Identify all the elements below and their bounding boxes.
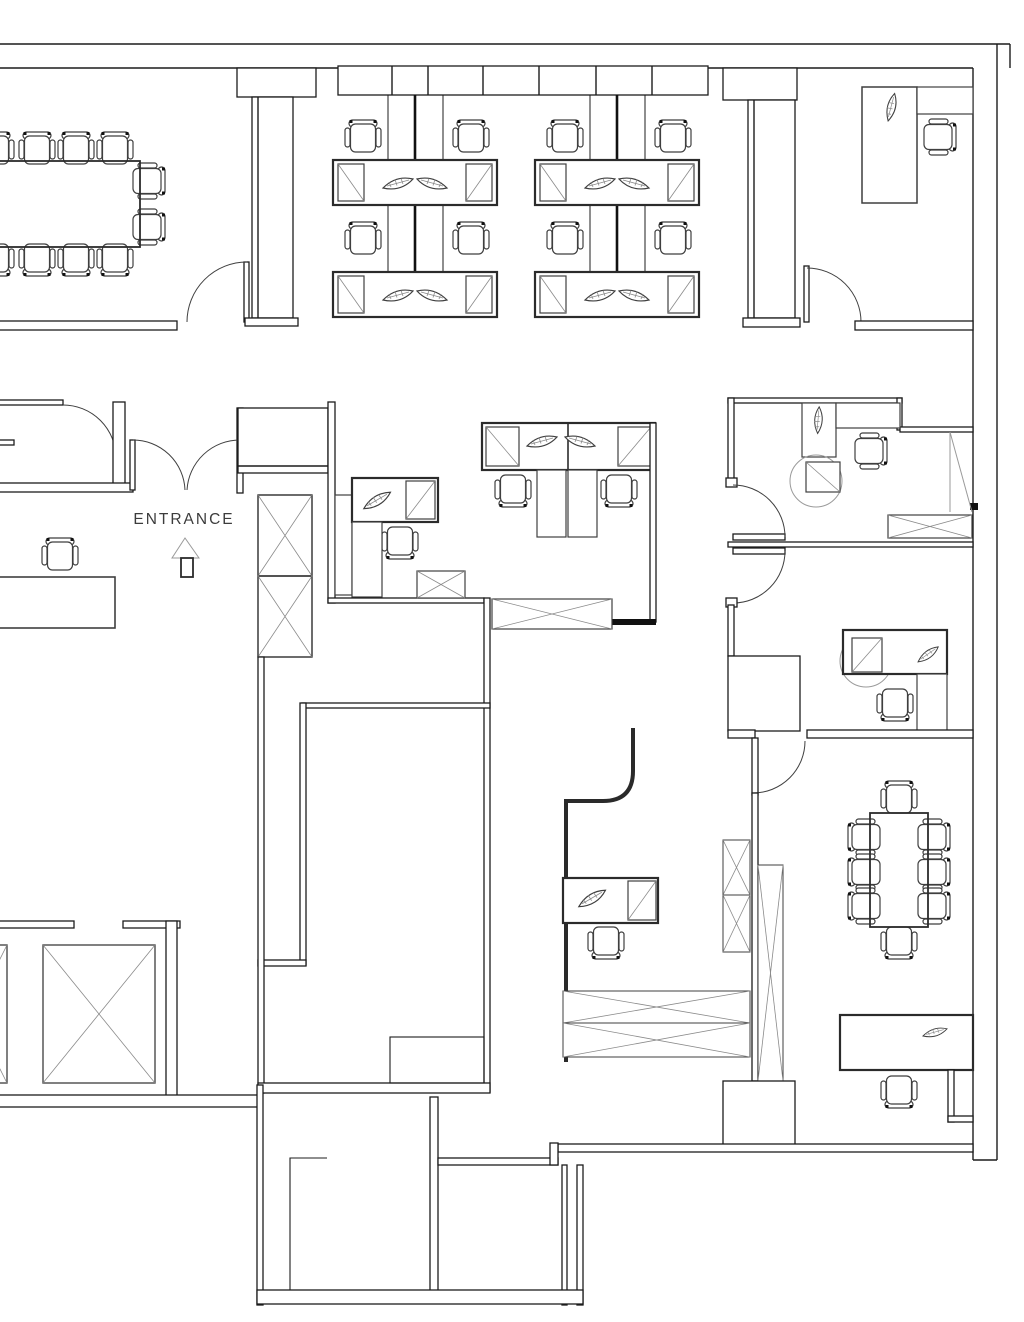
wall [900, 427, 973, 432]
crossed-cabinet [417, 571, 465, 598]
wall [430, 1097, 438, 1293]
office-east-2 [728, 630, 973, 795]
floor-plan-canvas: ENTRANCE [0, 0, 1024, 1322]
pillar [723, 1081, 795, 1147]
desk-return [352, 522, 382, 597]
chair [881, 927, 917, 959]
wall [113, 402, 125, 490]
elevator-shaft [43, 945, 155, 1083]
wall [558, 1144, 973, 1152]
floor-plan-drawing: ENTRANCE [0, 0, 1024, 1322]
door-arc [753, 741, 805, 793]
wall [438, 1158, 558, 1165]
wall [0, 400, 63, 405]
wall [258, 657, 264, 1093]
chair [453, 222, 489, 254]
service-rooms-south [257, 1085, 583, 1305]
chair [97, 244, 133, 276]
crossed-box [723, 895, 750, 952]
door-leaf [733, 548, 785, 554]
workstation-cluster-2 [535, 95, 699, 317]
chair [918, 819, 950, 855]
desk-return [537, 470, 566, 537]
wall [728, 398, 734, 480]
chair [881, 781, 917, 813]
chair [881, 1076, 917, 1108]
wall [0, 921, 74, 928]
desk-return [917, 674, 947, 731]
chair [547, 120, 583, 152]
chair [877, 689, 913, 721]
door-arc [733, 485, 785, 537]
wall [855, 321, 973, 330]
door-leaf [244, 262, 249, 322]
door-arc [187, 262, 247, 322]
wall [807, 730, 973, 738]
crossed-cabinet [492, 599, 612, 629]
elevator-core [0, 921, 260, 1107]
wall [258, 1083, 490, 1093]
wall [257, 1085, 263, 1305]
braced-column [758, 865, 783, 1081]
closet [238, 408, 328, 473]
chair [848, 819, 880, 855]
chair [133, 209, 165, 245]
wall [728, 398, 902, 403]
elevator-shaft [0, 945, 7, 1083]
crossed-box [723, 840, 750, 895]
door-arc [733, 551, 785, 603]
wall [328, 598, 484, 603]
chair [588, 927, 624, 959]
wall [728, 730, 755, 738]
entrance-area: ENTRANCE [0, 400, 352, 657]
meeting-room [848, 781, 950, 959]
entrance-label: ENTRANCE [133, 511, 234, 528]
chair [0, 244, 14, 276]
workstation-cluster-1 [333, 95, 497, 317]
wall [0, 1095, 260, 1107]
wall [484, 598, 490, 1092]
chair [345, 222, 381, 254]
door-arc [807, 268, 861, 322]
door-leaf [130, 440, 135, 490]
wall [166, 921, 177, 1097]
wall [258, 960, 306, 966]
side-panel [335, 495, 352, 595]
wall [948, 1116, 973, 1122]
chair [848, 888, 880, 924]
chair [58, 244, 94, 276]
wall [612, 619, 656, 625]
chair [133, 163, 165, 199]
wall [650, 423, 656, 622]
private-office-ne [862, 87, 973, 203]
door-leaf [804, 266, 809, 322]
reception-desk [0, 577, 115, 628]
wall-cabinet-row [338, 66, 708, 95]
chair [848, 854, 880, 890]
inner-step [290, 1158, 327, 1290]
chair [918, 854, 950, 890]
desk [840, 1015, 973, 1070]
wall-stub [0, 440, 14, 445]
central-room [258, 657, 490, 1093]
wall [0, 483, 133, 492]
door-leaf [733, 534, 785, 540]
chair [58, 132, 94, 164]
chair [453, 120, 489, 152]
entrance-arrow-icon [172, 538, 199, 577]
chair [345, 120, 381, 152]
desk-return [568, 470, 597, 537]
chair [655, 120, 691, 152]
chair [42, 538, 78, 570]
work-nook [563, 728, 783, 1081]
chair [495, 475, 531, 507]
wall [948, 1070, 954, 1122]
wall [728, 605, 734, 656]
office-east-1 [726, 398, 973, 538]
conference-table [0, 161, 140, 247]
chair [855, 433, 887, 469]
chair [0, 132, 14, 164]
reception-area [0, 538, 115, 628]
side-cabinet [917, 87, 973, 114]
wall [728, 542, 973, 547]
wall [300, 703, 306, 965]
chair [97, 132, 133, 164]
wall [302, 703, 490, 708]
wall [550, 1143, 558, 1165]
wall [752, 793, 758, 1081]
wall [328, 402, 335, 603]
inner-room [390, 1037, 484, 1083]
chair [924, 119, 956, 155]
chair [382, 527, 418, 559]
wall-pillar [723, 68, 800, 327]
door-arc [133, 440, 185, 490]
chair [601, 475, 637, 507]
side-cabinet [836, 403, 900, 428]
door-arc [187, 440, 240, 490]
crossed-sideboard [888, 515, 972, 538]
wall [577, 1165, 583, 1305]
chair [918, 888, 950, 924]
door-leaf [752, 738, 758, 795]
chair [19, 132, 55, 164]
closet [728, 656, 800, 731]
conference-room [0, 68, 316, 330]
wall-cap [726, 478, 737, 487]
chair [19, 244, 55, 276]
wall [257, 1290, 583, 1304]
door-arc [63, 405, 116, 458]
wall [0, 321, 177, 330]
braced-shaft [258, 495, 312, 657]
chair [547, 222, 583, 254]
wall [562, 1165, 567, 1305]
chair [655, 222, 691, 254]
crossed-low-cabinet [563, 1023, 750, 1057]
crossed-low-cabinet [563, 991, 750, 1023]
